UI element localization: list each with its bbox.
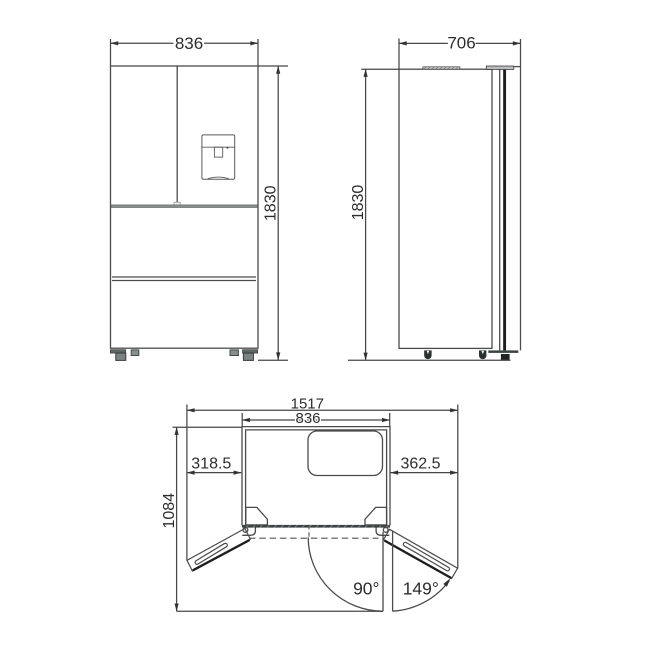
svg-text:1830: 1830 — [350, 185, 367, 221]
svg-text:90°: 90° — [353, 579, 379, 599]
svg-text:1084: 1084 — [161, 493, 178, 529]
svg-text:149°: 149° — [403, 579, 439, 599]
svg-text:1830: 1830 — [263, 185, 280, 221]
svg-text:362.5: 362.5 — [400, 455, 440, 472]
svg-text:836: 836 — [175, 34, 203, 53]
svg-text:706: 706 — [447, 34, 475, 53]
svg-text:318.5: 318.5 — [191, 455, 231, 472]
svg-text:836: 836 — [295, 410, 320, 427]
